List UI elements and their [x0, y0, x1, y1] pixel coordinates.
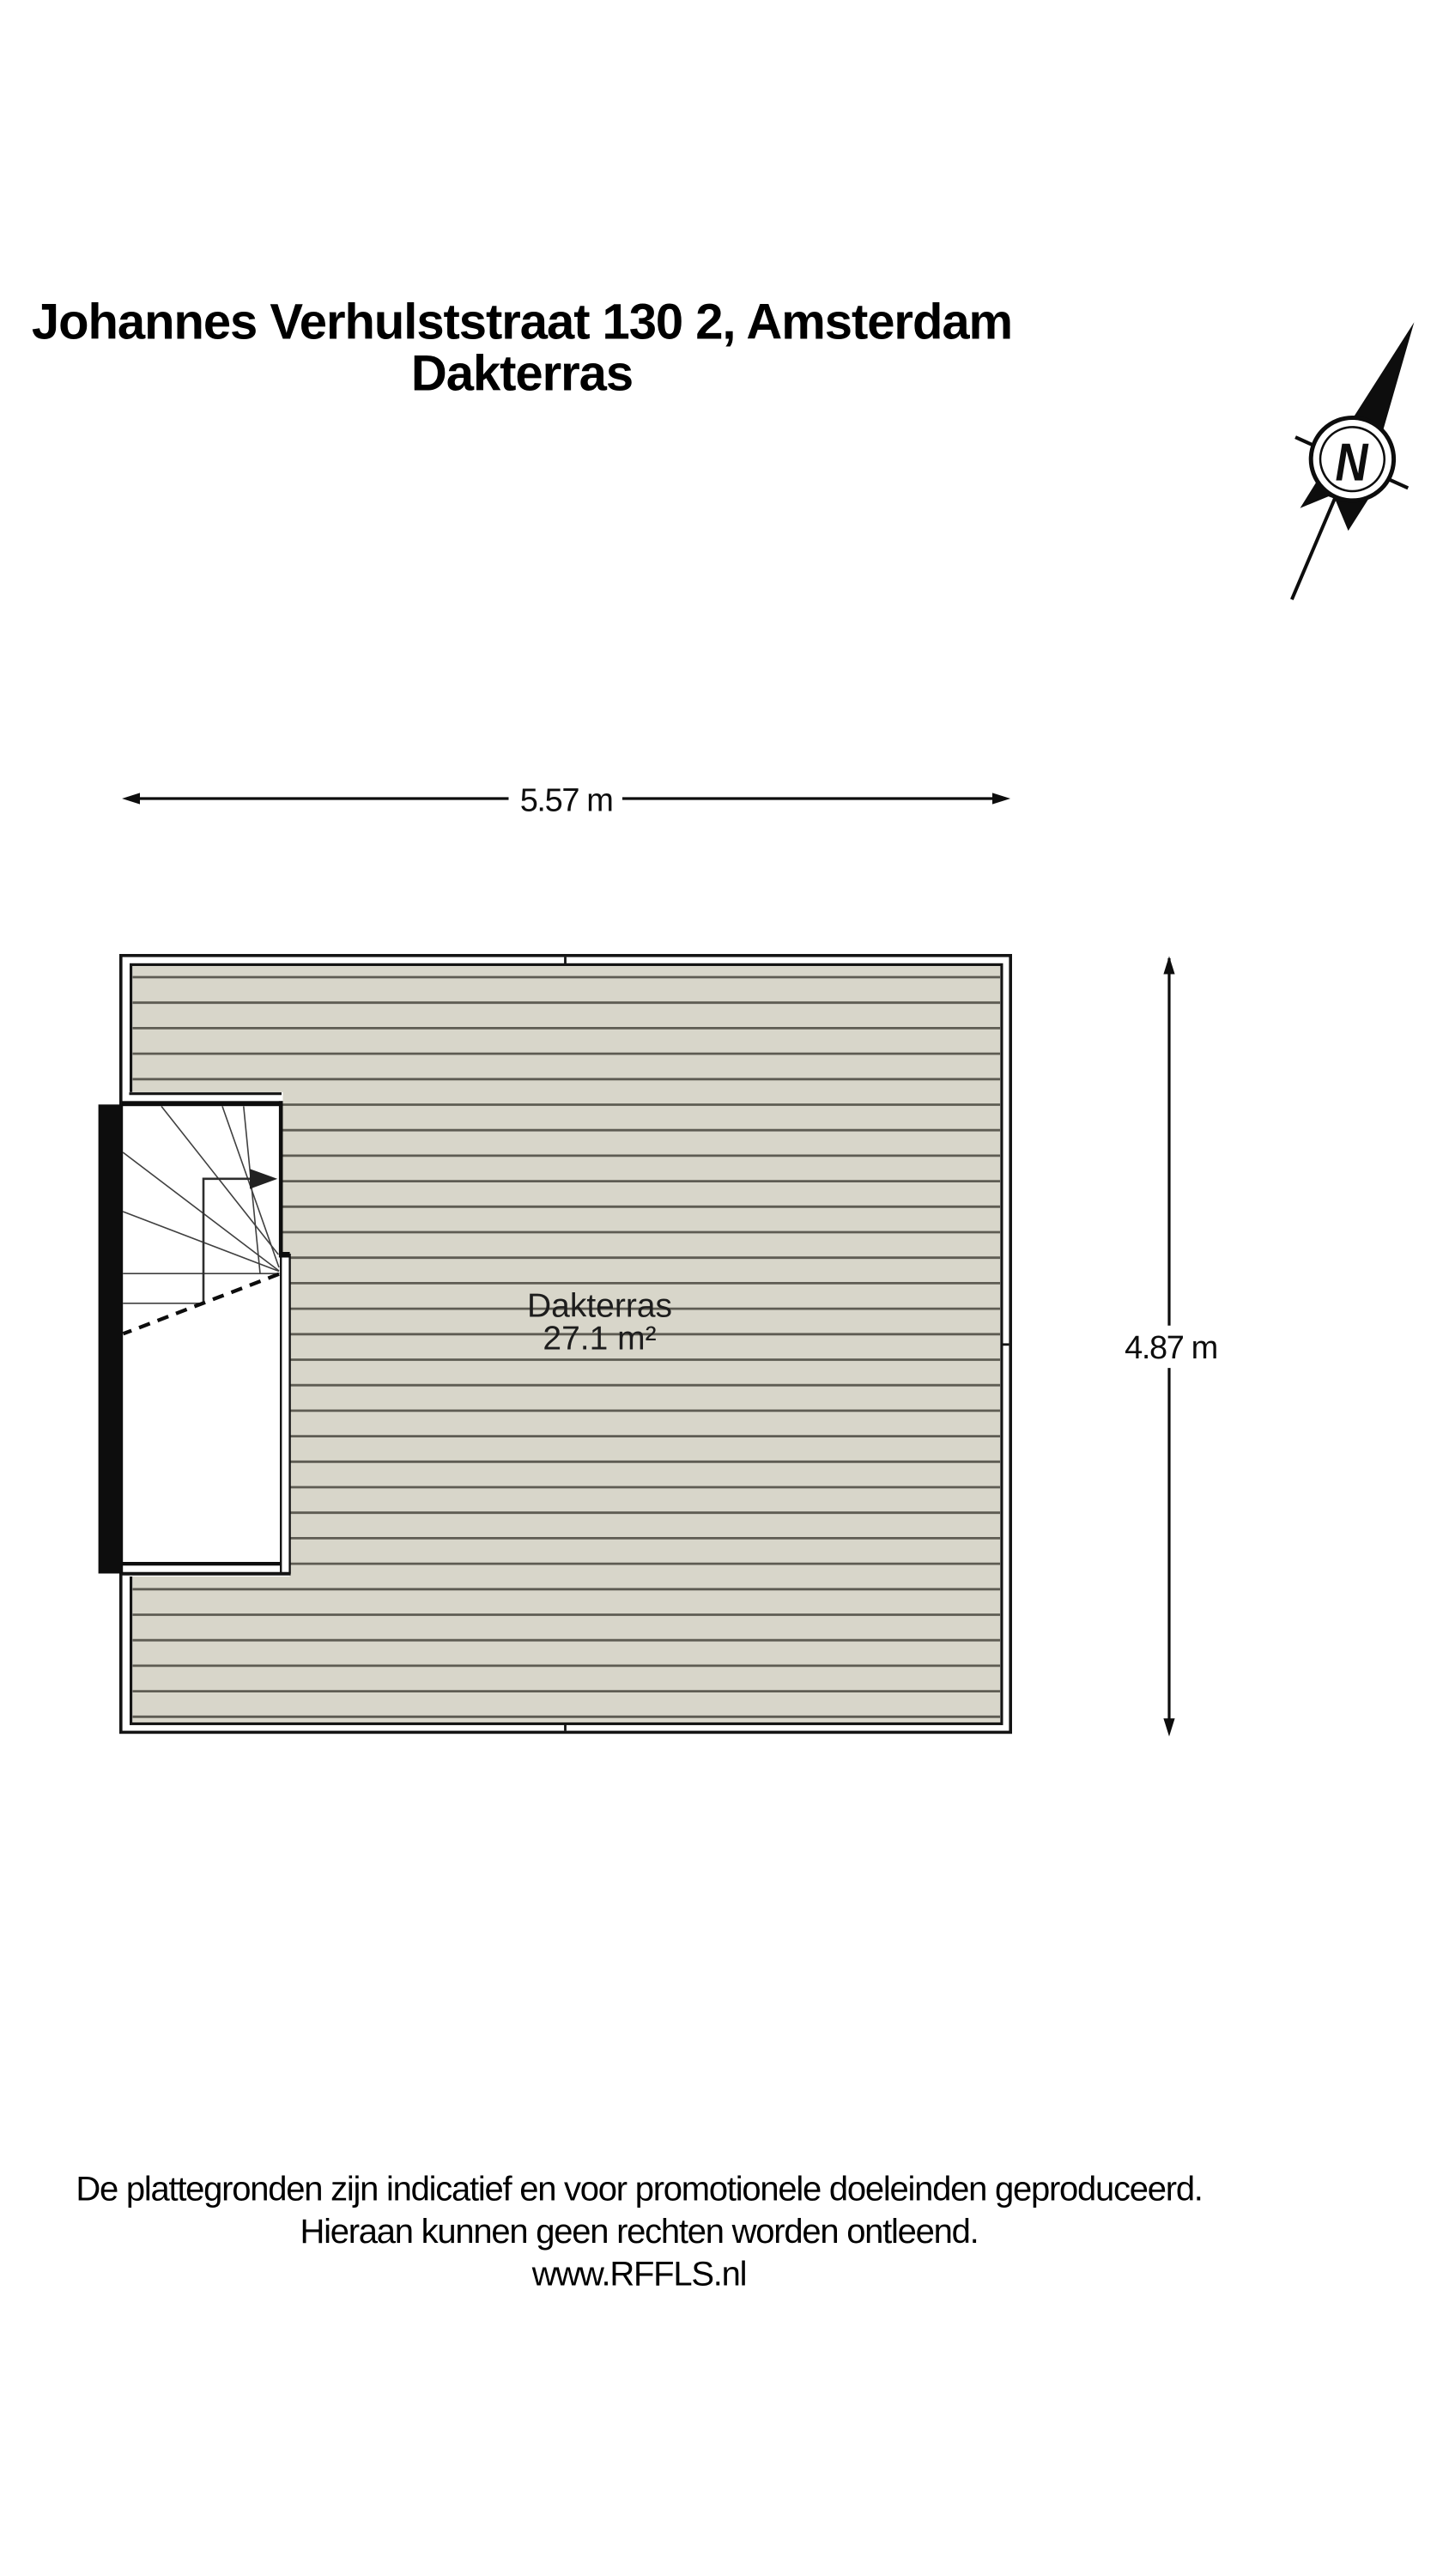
svg-text:De plattegronden zijn indicati: De plattegronden zijn indicatief en voor…: [76, 2171, 1202, 2208]
svg-text:5.57 m: 5.57 m: [520, 783, 613, 819]
svg-text:4.87 m: 4.87 m: [1125, 1330, 1217, 1366]
svg-text:www.RFFLS.nl: www.RFFLS.nl: [531, 2255, 747, 2293]
svg-text:N: N: [1335, 433, 1368, 492]
svg-text:Hieraan kunnen geen rechten wo: Hieraan kunnen geen rechten worden ontle…: [300, 2213, 978, 2251]
svg-text:27.1 m²: 27.1 m²: [543, 1321, 656, 1358]
svg-text:Johannes Verhulststraat 130 2,: Johannes Verhulststraat 130 2, Amsterdam: [32, 295, 1012, 350]
svg-text:Dakterras: Dakterras: [411, 346, 633, 402]
svg-text:Dakterras: Dakterras: [527, 1288, 672, 1325]
